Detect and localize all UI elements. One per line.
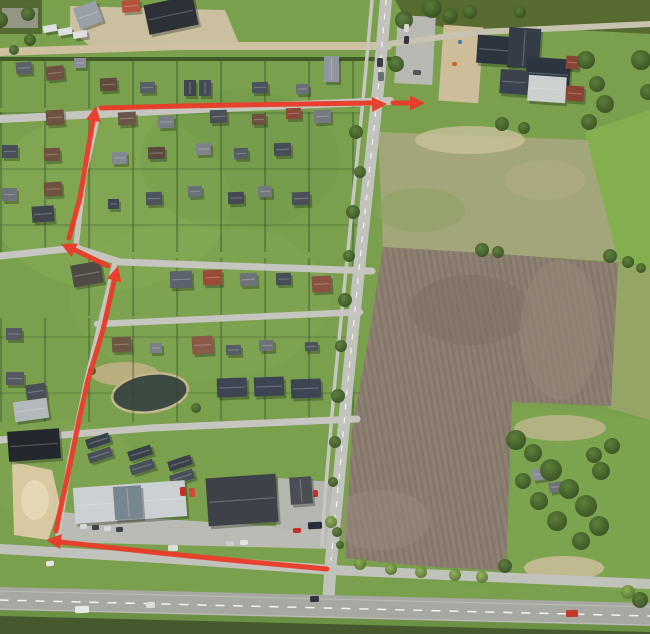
tree — [354, 558, 366, 570]
tree — [530, 492, 548, 510]
house — [6, 328, 24, 343]
house — [44, 181, 65, 199]
tree — [335, 340, 347, 352]
roof-ridge — [568, 62, 577, 63]
house — [112, 152, 130, 168]
house — [258, 186, 274, 201]
house — [324, 56, 341, 85]
vehicle — [240, 540, 248, 545]
tree — [572, 532, 590, 550]
roof-ridge — [205, 277, 220, 278]
house — [150, 343, 164, 356]
region-scrub-dirt-patch — [415, 126, 525, 154]
vehicle — [80, 524, 87, 529]
house — [565, 85, 586, 104]
house — [100, 77, 120, 94]
tree — [577, 51, 595, 69]
tree — [331, 389, 345, 403]
tree — [191, 403, 201, 413]
house — [314, 110, 334, 127]
house — [217, 377, 250, 400]
house — [2, 145, 20, 161]
region-dry-grass-patch — [514, 415, 606, 441]
house — [192, 335, 216, 357]
house — [226, 345, 243, 359]
house — [196, 143, 214, 159]
house — [74, 58, 88, 71]
tree — [589, 516, 609, 536]
tree — [604, 438, 620, 454]
house — [31, 205, 56, 226]
tree — [346, 205, 360, 219]
house — [228, 192, 247, 208]
house — [252, 114, 268, 129]
vehicle — [180, 487, 187, 496]
house — [140, 82, 157, 97]
vehicle — [75, 606, 89, 613]
tree — [24, 34, 36, 46]
tree — [589, 76, 605, 92]
tree — [524, 444, 542, 462]
tree — [336, 541, 344, 549]
tree — [388, 56, 404, 72]
vehicle — [116, 527, 123, 532]
vehicle — [404, 24, 410, 32]
tree — [515, 473, 531, 489]
house — [7, 428, 63, 465]
house — [240, 273, 260, 290]
vehicle — [293, 528, 301, 534]
tree — [636, 263, 646, 273]
tree — [349, 125, 363, 139]
region-field-dark-blotch — [410, 275, 530, 345]
region-scrub-green-patch — [375, 188, 465, 232]
tree — [385, 563, 397, 575]
house — [199, 80, 213, 99]
house — [2, 188, 19, 204]
house — [292, 192, 313, 209]
house — [122, 0, 143, 16]
vehicle — [308, 522, 322, 530]
region-scrub-dirt-patch — [505, 160, 585, 200]
tree — [475, 243, 489, 257]
tree — [621, 585, 635, 599]
tree — [449, 569, 461, 581]
house — [184, 80, 198, 99]
tree — [586, 447, 602, 463]
tree — [547, 511, 567, 531]
tree — [329, 436, 341, 448]
vehicle — [378, 72, 384, 81]
tree — [498, 559, 512, 573]
region-sand-heap — [21, 480, 49, 520]
house — [113, 485, 145, 523]
house — [158, 116, 177, 132]
house — [286, 108, 303, 123]
vehicle — [168, 545, 178, 552]
vehicle — [310, 596, 319, 602]
tree — [395, 11, 413, 29]
region-field-light-band — [520, 260, 600, 400]
tree — [575, 495, 597, 517]
tree — [328, 477, 338, 487]
vehicle — [404, 36, 410, 44]
tree — [442, 8, 458, 24]
vehicle — [146, 602, 155, 608]
house — [276, 273, 294, 289]
house — [188, 186, 204, 201]
vehicle — [566, 610, 578, 617]
roof-ridge — [102, 84, 115, 85]
vehicle — [458, 40, 462, 44]
tree — [21, 7, 35, 21]
tree — [343, 250, 355, 262]
region-field-light-sw — [330, 490, 430, 550]
roof-ridge — [120, 118, 134, 119]
house — [312, 275, 334, 295]
vehicle — [104, 526, 111, 531]
tree — [332, 527, 342, 537]
vehicle — [92, 525, 99, 530]
tree — [9, 45, 19, 55]
tree — [463, 5, 477, 19]
vehicle — [377, 58, 383, 67]
house — [499, 69, 531, 98]
tree — [622, 256, 634, 268]
roof-ridge — [172, 279, 190, 280]
house — [259, 340, 276, 355]
tree — [518, 122, 530, 134]
roof-ridge — [314, 284, 329, 285]
tree — [603, 249, 617, 263]
house — [170, 271, 195, 292]
tree — [592, 462, 610, 480]
house — [203, 270, 225, 289]
house — [274, 143, 294, 160]
house — [234, 148, 250, 163]
tree — [514, 6, 526, 18]
house — [118, 111, 139, 128]
tree — [492, 246, 504, 258]
roof-ridge — [46, 189, 60, 190]
tree — [476, 571, 488, 583]
house — [205, 473, 280, 529]
vehicle — [452, 62, 457, 66]
vehicle — [313, 490, 318, 497]
house — [6, 372, 26, 388]
region-garden-hedges — [0, 318, 360, 422]
aerial-photo — [0, 0, 650, 634]
tree — [415, 566, 427, 578]
tree — [559, 479, 579, 499]
house — [46, 109, 67, 128]
tree — [495, 117, 509, 131]
tree — [325, 516, 337, 528]
tree — [338, 293, 352, 307]
tree — [581, 114, 597, 130]
house — [146, 192, 165, 209]
roof-ridge — [48, 117, 62, 118]
roof-ridge — [18, 68, 30, 69]
house — [210, 110, 230, 127]
map-canvas — [0, 0, 650, 634]
house — [44, 148, 63, 165]
house — [112, 336, 134, 355]
tree — [540, 459, 562, 481]
tree — [506, 430, 526, 450]
house — [289, 476, 315, 508]
house — [254, 376, 287, 399]
house — [252, 82, 270, 97]
house — [148, 147, 168, 163]
vehicle — [189, 488, 196, 497]
tree — [596, 95, 614, 113]
roof-ridge — [114, 344, 129, 345]
tree — [354, 166, 366, 178]
vehicle — [226, 541, 234, 546]
house — [527, 75, 569, 107]
vehicle — [413, 70, 421, 76]
house — [291, 378, 324, 401]
